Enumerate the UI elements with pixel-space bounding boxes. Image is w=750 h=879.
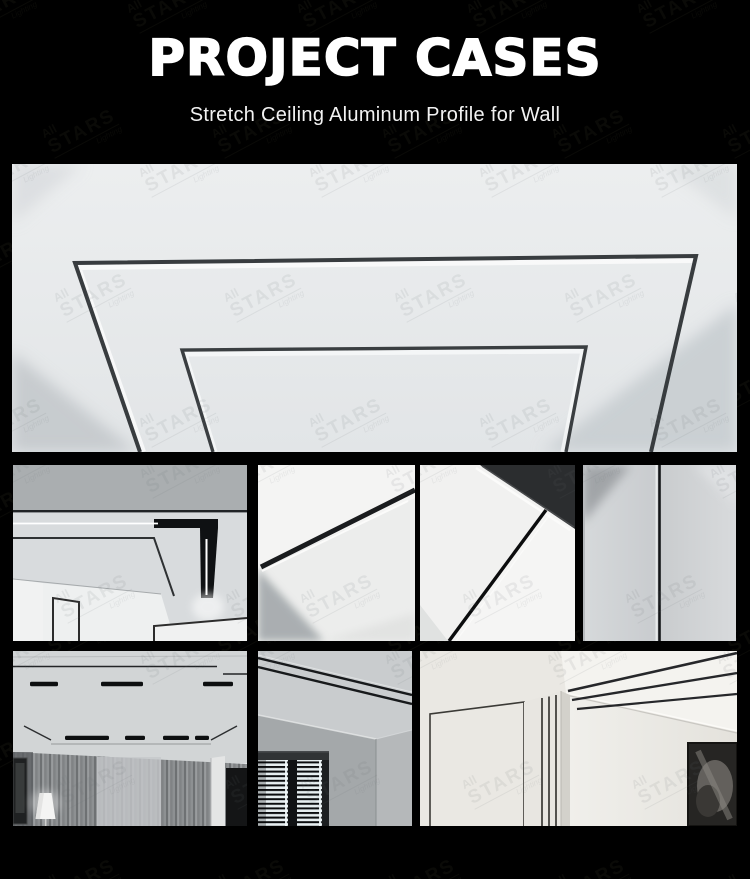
brand-watermark: AllSTARSLighting: [379, 845, 463, 879]
door-frame: [211, 756, 225, 826]
brand-watermark-text: All: [719, 872, 738, 879]
wall-art-frame: [688, 743, 737, 826]
banner-header: PROJECT CASES Stretch Ceiling Aluminum P…: [0, 0, 750, 164]
brand-watermark-text: STARS: [555, 856, 629, 879]
brand-watermark-text: STARS: [215, 856, 289, 879]
photo-living-room-linear-lights: AllSTARSLightingAllSTARSLightingAllSTARS…: [13, 651, 247, 826]
photo-ceiling-trim-closeup: AllSTARSLightingAllSTARSLightingAllSTARS…: [258, 465, 415, 641]
brand-watermark: AllSTARSLighting: [39, 845, 123, 879]
ceiling-shadow-gap: [13, 510, 247, 512]
window-with-blinds: [258, 751, 329, 826]
brand-watermark-text: All: [209, 872, 228, 879]
tv-screen: [226, 768, 247, 826]
page-subtitle: Stretch Ceiling Aluminum Profile for Wal…: [0, 86, 750, 127]
brand-watermark-text: STARS: [725, 856, 750, 879]
room-corner-illustration: [420, 651, 737, 826]
brand-watermark-text: All: [379, 872, 398, 879]
hero-photo-nested-ceiling-frames: AllSTARSLightingAllSTARSLightingAllSTARS…: [12, 164, 737, 452]
panel-seam-illustration: [583, 465, 736, 641]
brand-watermark-text: All: [39, 872, 58, 879]
brand-watermark: AllSTARSLighting: [209, 845, 293, 879]
brand-watermark-text: All: [549, 872, 568, 879]
brand-watermark: AllSTARSLighting: [549, 845, 633, 879]
led-track-illustration: [13, 465, 247, 641]
photo-room-corner-wall-profiles: AllSTARSLightingAllSTARSLightingAllSTARS…: [420, 651, 737, 826]
seam-illustration: [420, 465, 575, 641]
trim-closeup-illustration: [258, 465, 415, 641]
window-blinds-illustration: [258, 651, 412, 826]
brand-watermark-text: STARS: [385, 856, 459, 879]
hero-ceiling-illustration: [12, 164, 737, 452]
sheer-curtain: [97, 757, 161, 826]
brand-watermark-text: Lighting: [265, 875, 294, 879]
brand-watermark: AllSTARSLighting: [719, 845, 750, 879]
brand-watermark-text: Lighting: [95, 875, 124, 879]
photo-ceiling-led-track: AllSTARSLightingAllSTARSLightingAllSTARS…: [13, 465, 247, 641]
brand-watermark-text: Lighting: [605, 875, 634, 879]
photo-wall-panel-seam: AllSTARSLightingAllSTARSLightingAllSTARS…: [583, 465, 736, 641]
photo-room-window-blinds: AllSTARSLightingAllSTARSLightingAllSTARS…: [258, 651, 412, 826]
ceiling: [13, 651, 247, 763]
upper-ceiling-band: [13, 465, 247, 510]
photo-ceiling-seam-dark-corner: AllSTARSLightingAllSTARSLightingAllSTARS…: [420, 465, 575, 641]
page-title: PROJECT CASES: [0, 0, 750, 86]
living-room-illustration: [13, 651, 247, 826]
brand-watermark-text: Lighting: [435, 875, 464, 879]
brand-watermark-text: STARS: [45, 856, 119, 879]
project-cases-banner: AllSTARSLightingAllSTARSLightingAllSTARS…: [0, 0, 750, 879]
